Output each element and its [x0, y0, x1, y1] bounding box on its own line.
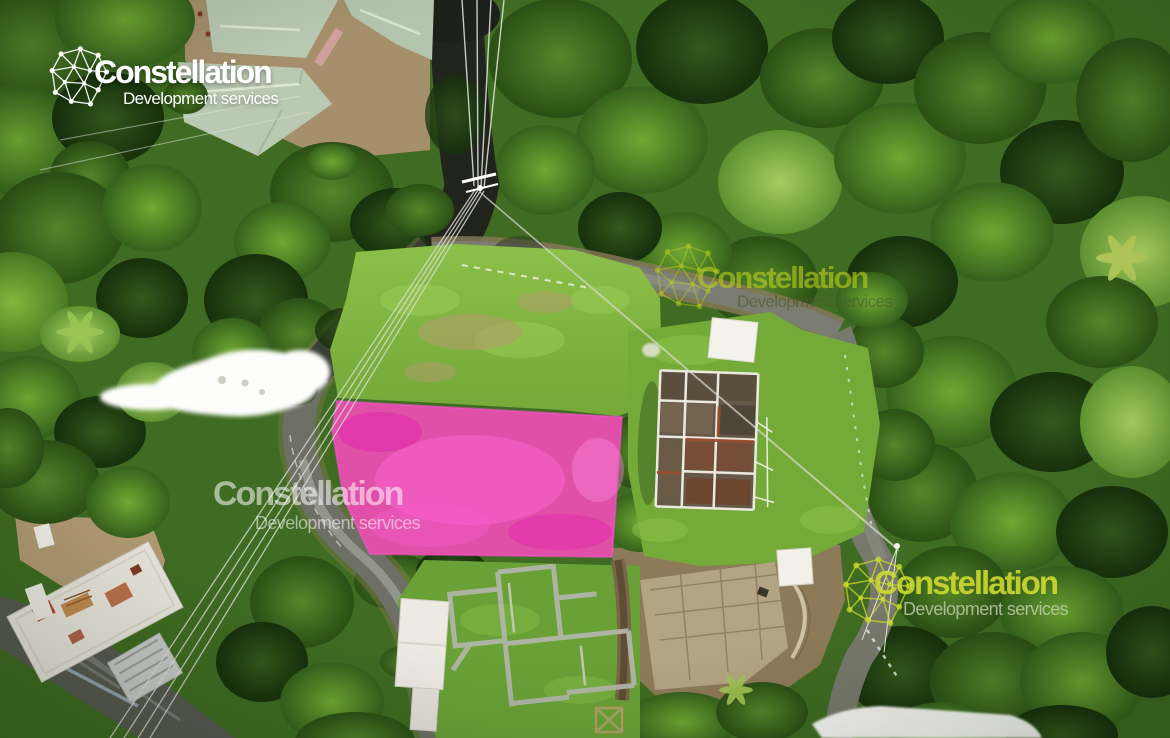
aerial-photo: Constellation Development services Const…	[0, 0, 1170, 738]
aerial-scene	[0, 0, 1170, 738]
vignette	[0, 0, 1170, 738]
